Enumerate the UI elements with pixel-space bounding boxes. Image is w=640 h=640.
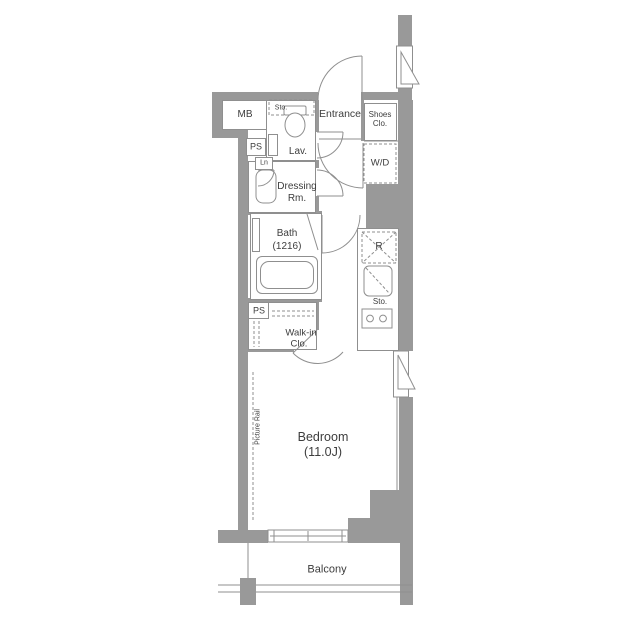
label-bath-2: (1216) [273,242,302,252]
label-ln: Ln [260,160,268,167]
label-sto-toilet: Sto. [275,105,287,112]
floor-plan: MB Sto. Lav. PS Ln Dressing Rm. Entrance… [0,0,640,640]
label-shoes-2: Clo. [373,120,387,128]
wall-balcony-pillar [240,578,256,605]
label-dressing-1: Dressing [277,182,316,192]
label-sto-kitchen: Sto. [373,298,387,306]
label-fridge: R [375,242,382,252]
label-walkin-2: Clo. [291,339,308,349]
label-picture-rail: Picture Rail [255,409,262,445]
label-bedroom-2: (11.0J) [304,446,342,459]
linen-door-arc [258,170,274,186]
label-balcony: Balcony [307,565,346,576]
lav-door-arc [317,132,343,158]
label-wd: W/D [371,158,389,168]
stove-burner-left [367,315,374,322]
stove-burner-right [380,315,387,322]
toilet-bowl [285,113,305,137]
label-ps-lower: PS [253,307,265,316]
label-mb: MB [238,110,253,120]
kitchen-sink-diagonal [366,268,389,293]
label-dressing-2: Rm. [288,194,306,204]
label-entrance: Entrance [319,109,361,120]
label-ps-upper: PS [250,143,262,152]
entrance-door-arc [318,56,362,100]
walkin-door-arc [293,352,343,363]
corridor-door-arc [322,215,360,253]
label-walkin-1: Walk-in [285,328,316,338]
bath-door-leaf [307,214,318,250]
label-lav: Lav. [289,147,307,157]
label-bedroom-1: Bedroom [298,431,349,444]
hall-closet-door-arc [318,143,363,188]
label-shoes-1: Shoes [369,111,392,119]
label-bath-1: Bath [277,229,298,239]
linework-layer [0,0,640,640]
